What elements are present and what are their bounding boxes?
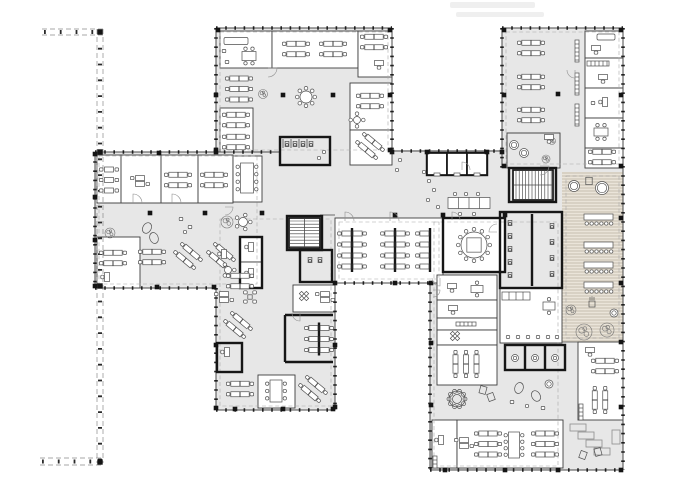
lounge-chair xyxy=(520,149,529,158)
elevator xyxy=(427,153,447,176)
chair xyxy=(225,60,229,63)
chair xyxy=(541,406,545,409)
staircase xyxy=(289,218,320,248)
shelf xyxy=(579,404,583,420)
stool xyxy=(422,170,425,173)
shelf xyxy=(575,104,579,126)
elevator xyxy=(467,153,487,176)
stool xyxy=(464,192,467,195)
desk-cluster xyxy=(531,431,558,457)
chair xyxy=(222,49,226,52)
shelf xyxy=(575,73,579,95)
chair xyxy=(179,217,183,220)
canopy-lines xyxy=(40,29,103,465)
stool xyxy=(183,230,186,233)
shelf xyxy=(575,40,579,62)
bench-chair xyxy=(516,336,519,339)
bench-chair xyxy=(555,336,558,339)
desk-cluster xyxy=(474,431,501,457)
stool xyxy=(453,192,456,195)
floor-plan-svg xyxy=(0,0,700,495)
lounge-chair xyxy=(596,182,609,195)
lounge-chair xyxy=(569,181,580,192)
bench-chair xyxy=(546,336,549,339)
chair xyxy=(188,225,192,228)
elevators xyxy=(427,153,487,176)
desk-cluster xyxy=(225,76,252,102)
stool xyxy=(426,198,429,201)
lounge-chair xyxy=(510,141,519,150)
desk-row xyxy=(99,167,118,193)
desk-bank xyxy=(305,323,334,356)
staircase xyxy=(513,170,553,200)
shelf xyxy=(456,322,476,326)
floor-plan xyxy=(0,0,700,495)
lounge-chair xyxy=(532,355,539,362)
stool xyxy=(398,158,401,161)
stool xyxy=(322,150,325,153)
stool xyxy=(458,212,461,215)
stool xyxy=(476,192,479,195)
desk-cluster xyxy=(453,350,479,377)
lounge-chair xyxy=(610,309,618,317)
stool xyxy=(436,205,439,208)
lounge-chair xyxy=(512,355,519,362)
lounge-chair xyxy=(545,380,553,388)
kitchen-counter xyxy=(448,198,490,209)
bench-chair xyxy=(506,336,509,339)
stool xyxy=(525,404,528,407)
kitchen-counter xyxy=(502,292,530,300)
chair xyxy=(591,101,595,104)
faded-mark xyxy=(450,2,535,8)
stool xyxy=(395,168,398,171)
bench-chair xyxy=(536,336,539,339)
shelf xyxy=(433,456,437,468)
meeting-table xyxy=(266,380,287,402)
chair xyxy=(510,400,514,403)
stool xyxy=(317,156,320,159)
sofa xyxy=(597,34,615,40)
elevator xyxy=(447,153,467,176)
sofa xyxy=(224,38,248,45)
bench-chair xyxy=(526,336,529,339)
stool xyxy=(472,212,475,215)
faded-mark xyxy=(456,12,544,17)
shelf xyxy=(587,61,609,66)
stool xyxy=(427,179,430,182)
round-table xyxy=(295,86,316,107)
stool xyxy=(432,188,435,191)
lounge-chair xyxy=(552,355,559,362)
